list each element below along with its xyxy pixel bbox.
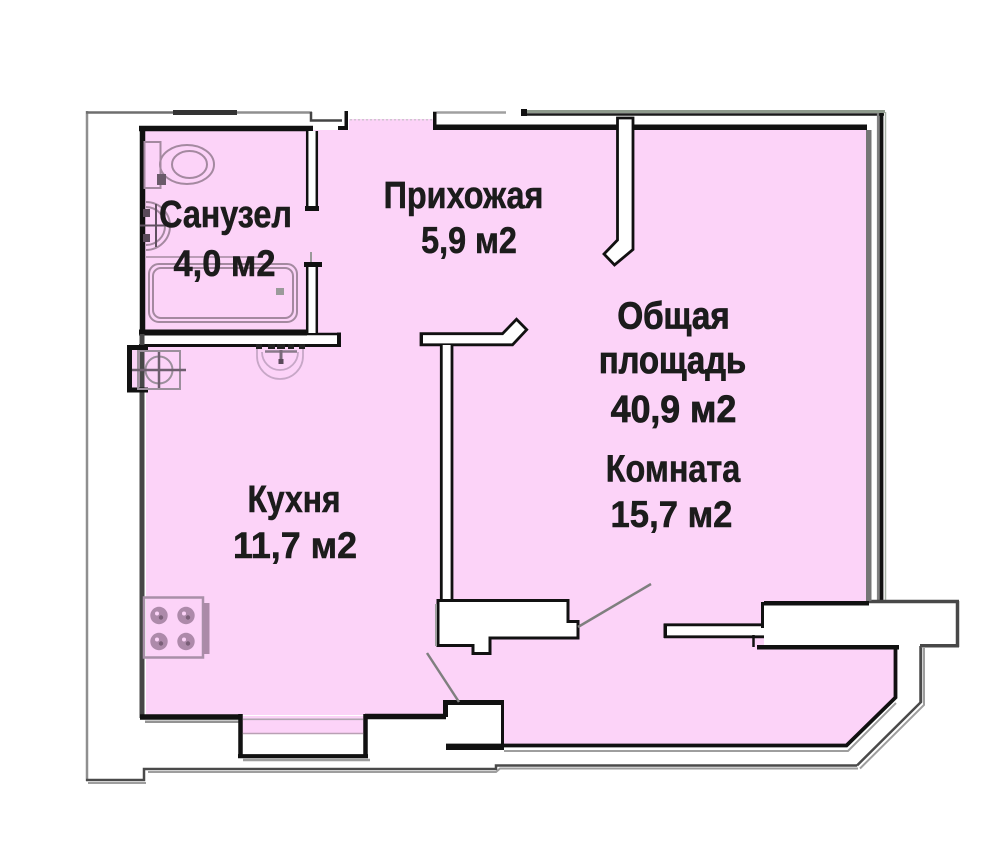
svg-text:11,7 м2: 11,7 м2 xyxy=(233,524,357,566)
svg-text:площадь: площадь xyxy=(599,339,746,382)
svg-text:5,9 м2: 5,9 м2 xyxy=(421,221,517,261)
svg-text:Санузел: Санузел xyxy=(159,194,292,236)
svg-text:Общая: Общая xyxy=(617,294,729,337)
svg-text:Комната: Комната xyxy=(606,448,741,490)
svg-text:Прихожая: Прихожая xyxy=(384,175,544,217)
svg-text:40,9 м2: 40,9 м2 xyxy=(611,388,737,430)
svg-text:4,0 м2: 4,0 м2 xyxy=(174,243,276,284)
svg-text:Кухня: Кухня xyxy=(247,478,340,520)
svg-text:15,7 м2: 15,7 м2 xyxy=(611,494,733,535)
